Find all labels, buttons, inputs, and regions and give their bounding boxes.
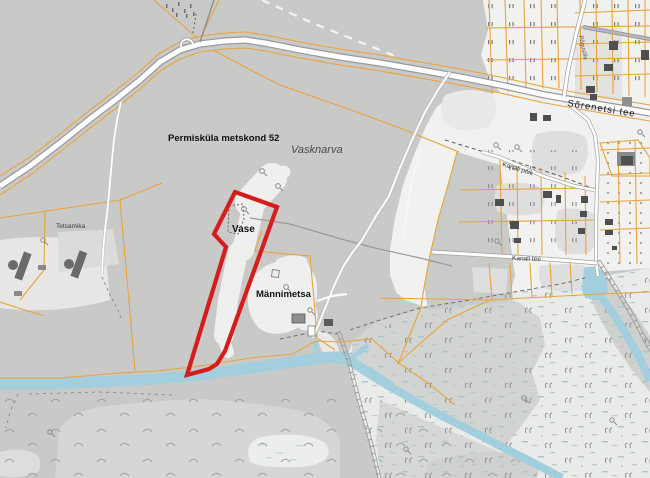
svg-text:Vasknarva: Vasknarva: [291, 144, 343, 156]
svg-text:Tetsamika: Tetsamika: [56, 223, 86, 230]
svg-text:Permisküla metskond 52: Permisküla metskond 52: [168, 133, 279, 144]
svg-text:Kanali tee: Kanali tee: [512, 255, 542, 263]
svg-text:Vase: Vase: [232, 224, 255, 235]
svg-text:Männimetsa: Männimetsa: [256, 289, 312, 300]
